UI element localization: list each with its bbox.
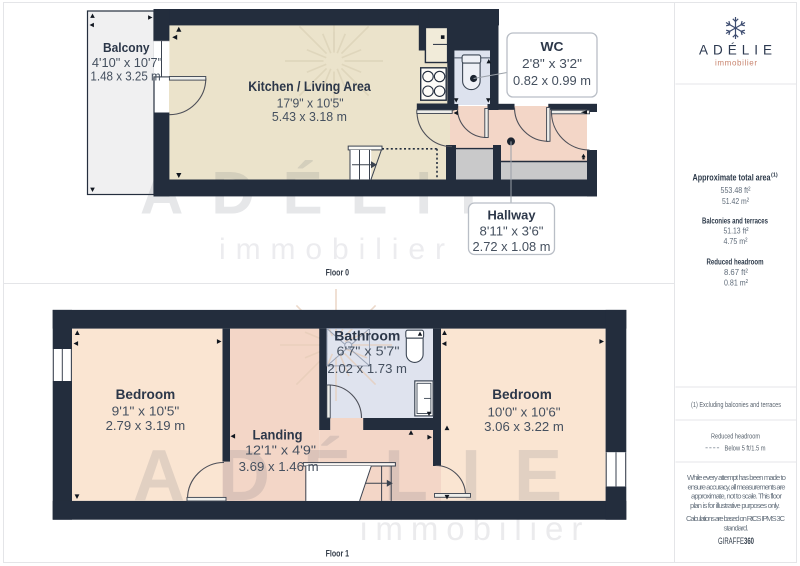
svg-text:Landing: Landing (253, 427, 303, 443)
svg-text:immobilier: immobilier (715, 59, 757, 68)
svg-text:Hallway: Hallway (488, 208, 537, 223)
svg-text:6'7" x 5'7": 6'7" x 5'7" (337, 345, 400, 359)
svg-text:WC: WC (541, 39, 565, 54)
svg-text:8'11" x 3'6": 8'11" x 3'6" (480, 225, 544, 239)
svg-text:Reduced headroom: Reduced headroom (711, 432, 760, 441)
svg-text:Floor 1: Floor 1 (326, 549, 350, 559)
svg-text:(1) Excluding balconies and te: (1) Excluding balconies and terraces (691, 400, 781, 409)
svg-text:ADÉLIE: ADÉLIE (699, 43, 777, 58)
svg-text:Bedroom: Bedroom (116, 386, 176, 402)
svg-text:5.43 x 3.18 m: 5.43 x 3.18 m (272, 110, 347, 124)
svg-text:Balconies and terraces: Balconies and terraces (702, 217, 768, 226)
svg-text:Below 5 ft/1.5 m: Below 5 ft/1.5 m (725, 443, 766, 452)
svg-text:12'1" x 4'9": 12'1" x 4'9" (245, 443, 316, 457)
svg-text:2.79 x 3.19 m: 2.79 x 3.19 m (106, 419, 186, 433)
svg-text:Bathroom: Bathroom (334, 327, 400, 343)
svg-text:While every attempt has been m: While every attempt has been made to (687, 473, 786, 482)
svg-text:1.48 x 3.25 m: 1.48 x 3.25 m (90, 70, 160, 84)
svg-text:standard.: standard. (724, 523, 749, 532)
svg-text:51.13 ft²: 51.13 ft² (724, 226, 749, 236)
svg-text:2'8" x 3'2": 2'8" x 3'2" (522, 57, 582, 71)
svg-text:plan is for illustrative purpo: plan is for illustrative purposes only. (690, 501, 780, 510)
svg-text:2.02 x 1.73 m: 2.02 x 1.73 m (327, 362, 407, 376)
svg-text:17'9" x 10'5": 17'9" x 10'5" (277, 96, 344, 110)
svg-text:3.69 x 1.46 m: 3.69 x 1.46 m (239, 460, 319, 474)
svg-text:10'0" x 10'6": 10'0" x 10'6" (488, 405, 561, 419)
svg-text:immobilier: immobilier (219, 233, 445, 266)
svg-text:Balcony: Balcony (103, 40, 150, 55)
svg-text:Bedroom: Bedroom (492, 386, 552, 402)
svg-text:553.48 ft²: 553.48 ft² (721, 185, 751, 195)
svg-text:2.72 x 1.08 m: 2.72 x 1.08 m (473, 240, 551, 254)
svg-text:8.67 ft²: 8.67 ft² (724, 267, 748, 277)
svg-text:9'1" x 10'5": 9'1" x 10'5" (112, 405, 180, 419)
svg-text:4.75 m²: 4.75 m² (724, 236, 748, 246)
svg-text:51.42 m²: 51.42 m² (722, 196, 749, 206)
svg-text:0.81 m²: 0.81 m² (724, 278, 748, 288)
svg-text:Kitchen / Living Area: Kitchen / Living Area (248, 78, 371, 94)
svg-text:ensure accuracy, all measureme: ensure accuracy, all measurements are (688, 482, 786, 491)
svg-text:3.06 x 3.22 m: 3.06 x 3.22 m (484, 420, 564, 434)
svg-text:0.82 x 0.99 m: 0.82 x 0.99 m (513, 74, 591, 88)
svg-text:(1): (1) (771, 173, 778, 179)
svg-text:GIRAFFE360: GIRAFFE360 (718, 536, 754, 546)
svg-text:Floor 0: Floor 0 (326, 268, 350, 278)
svg-text:Reduced headroom: Reduced headroom (707, 257, 764, 266)
svg-text:4'10" x 10'7": 4'10" x 10'7" (92, 56, 162, 70)
svg-text:approximate, not to scale. Thi: approximate, not to scale. This floor (691, 492, 782, 501)
svg-text:Calculations are based on RICS: Calculations are based on RICS IPMS 3C (686, 514, 786, 523)
svg-text:Approximate total area: Approximate total area (693, 173, 772, 183)
